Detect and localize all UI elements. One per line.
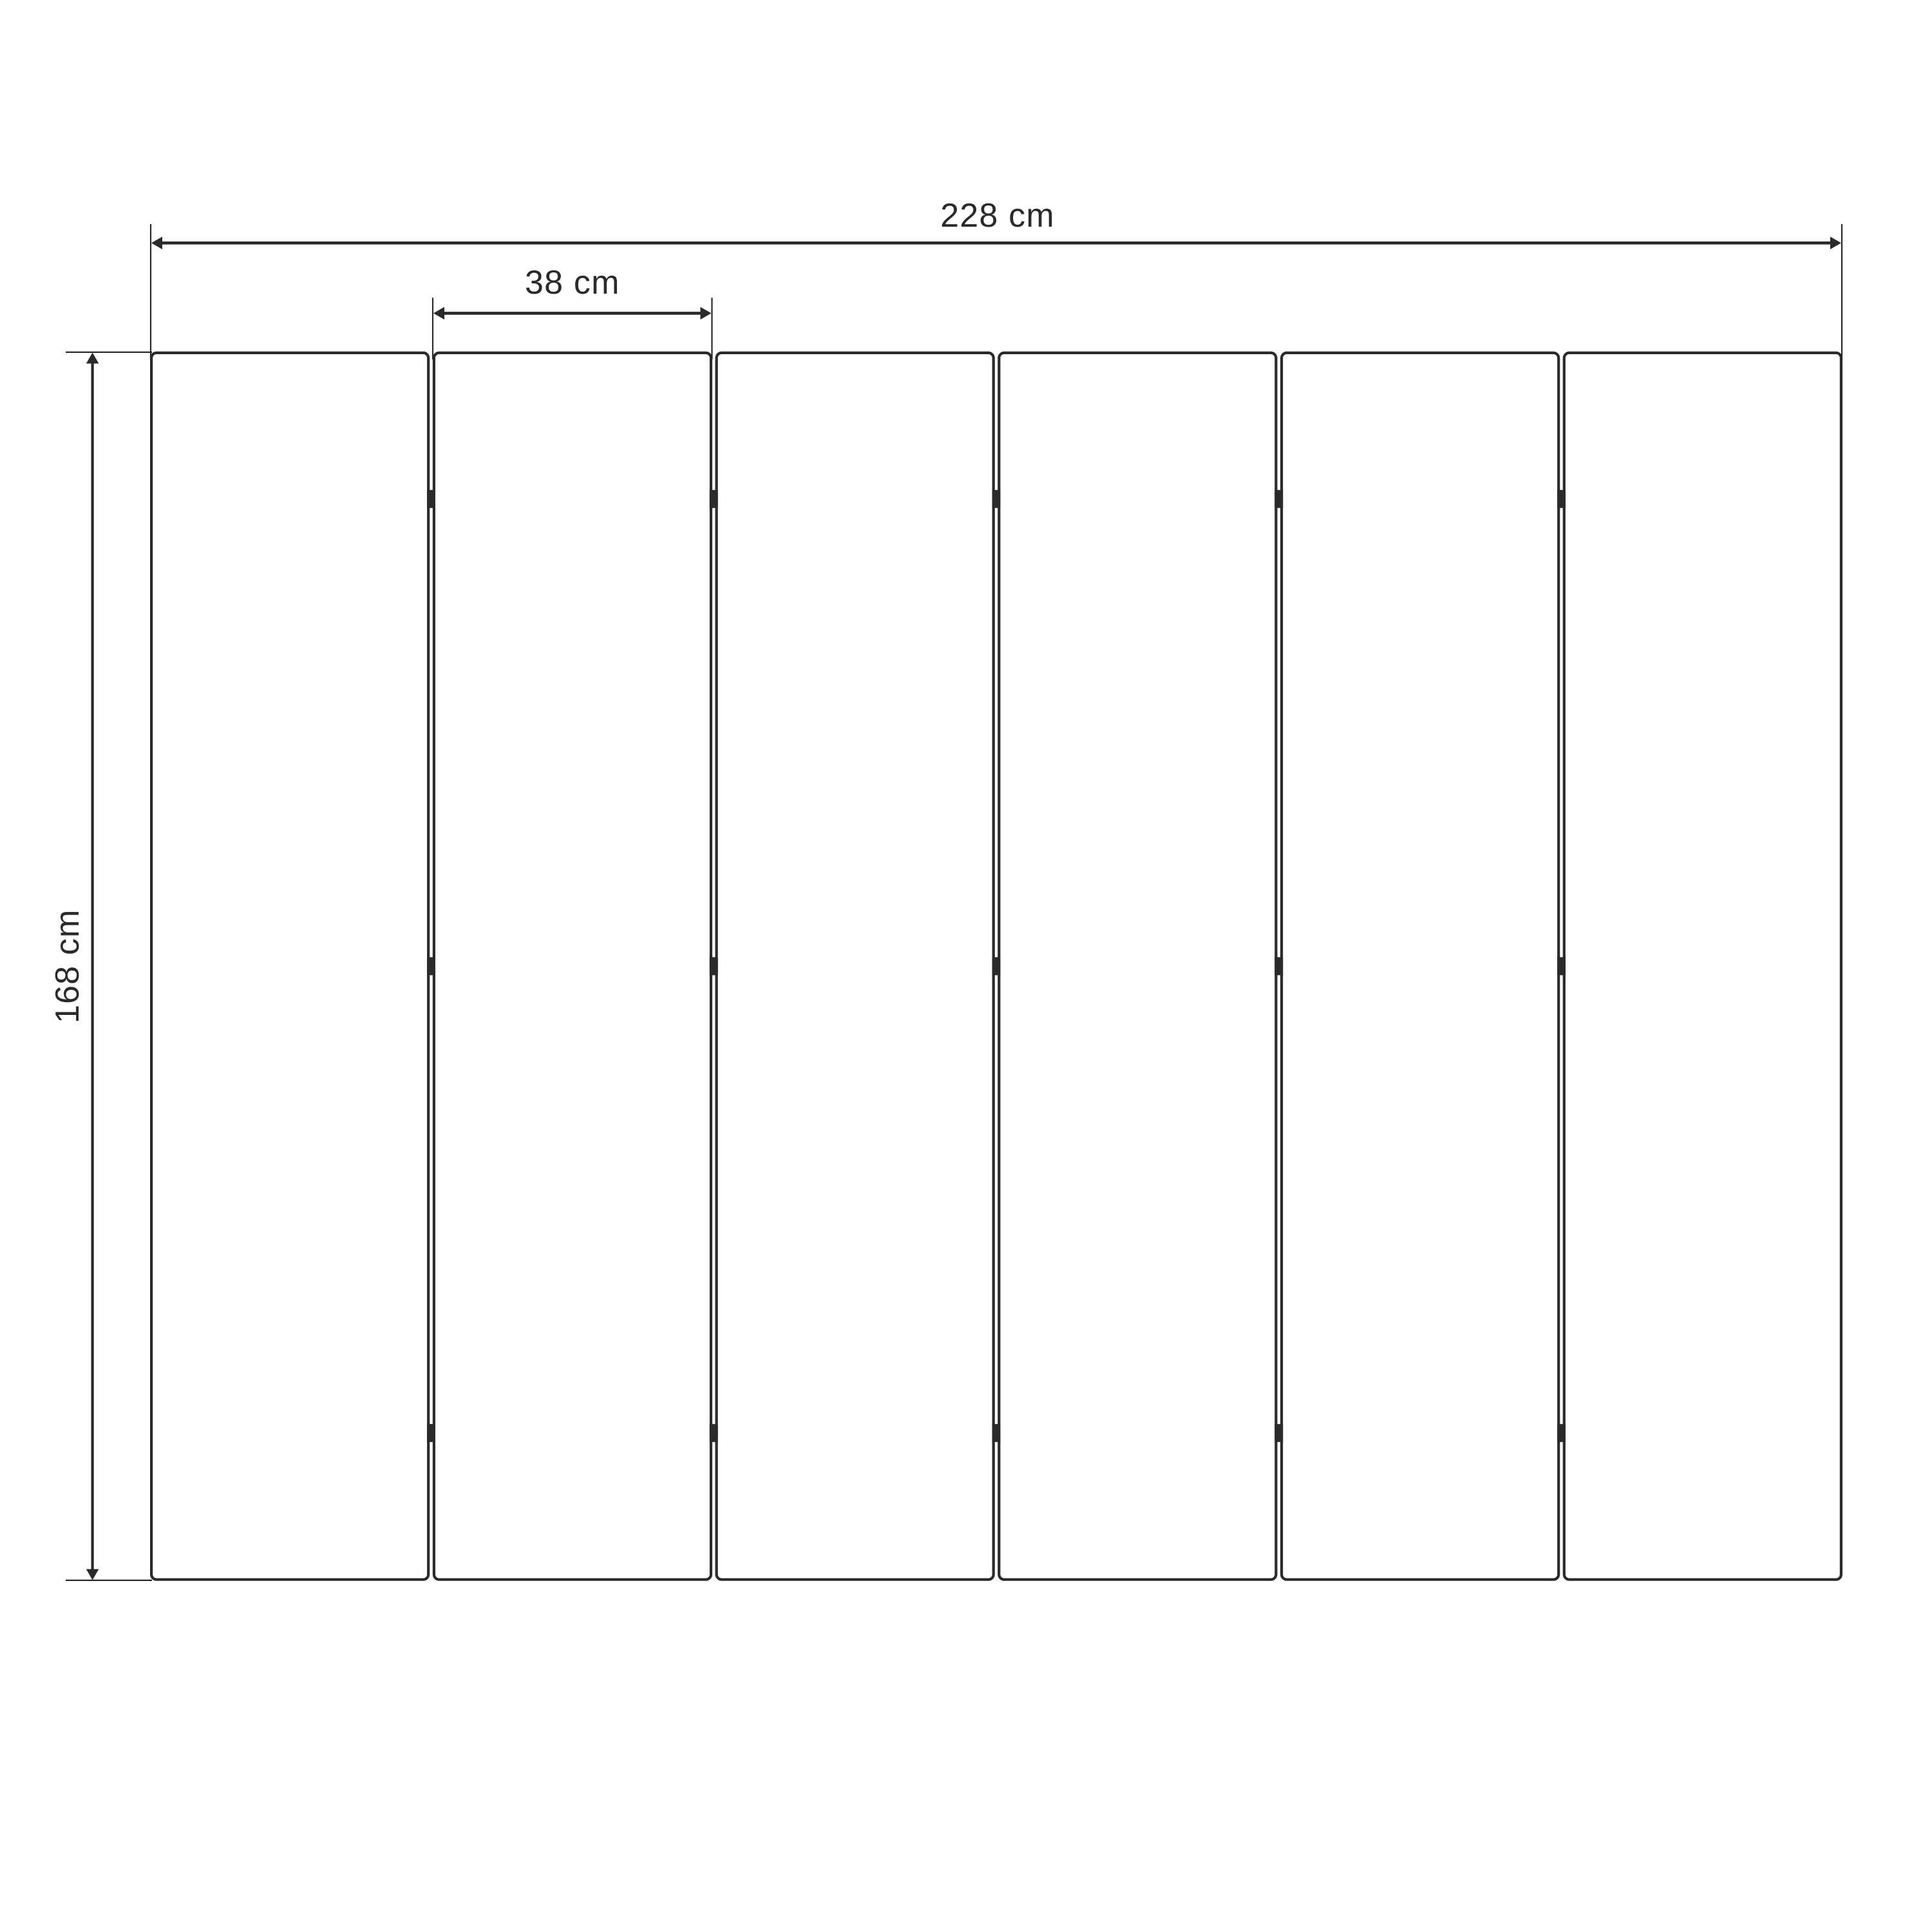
svg-text:38 cm: 38 cm [525, 264, 620, 301]
svg-text:228 cm: 228 cm [940, 197, 1055, 234]
svg-text:168 cm: 168 cm [49, 909, 86, 1023]
